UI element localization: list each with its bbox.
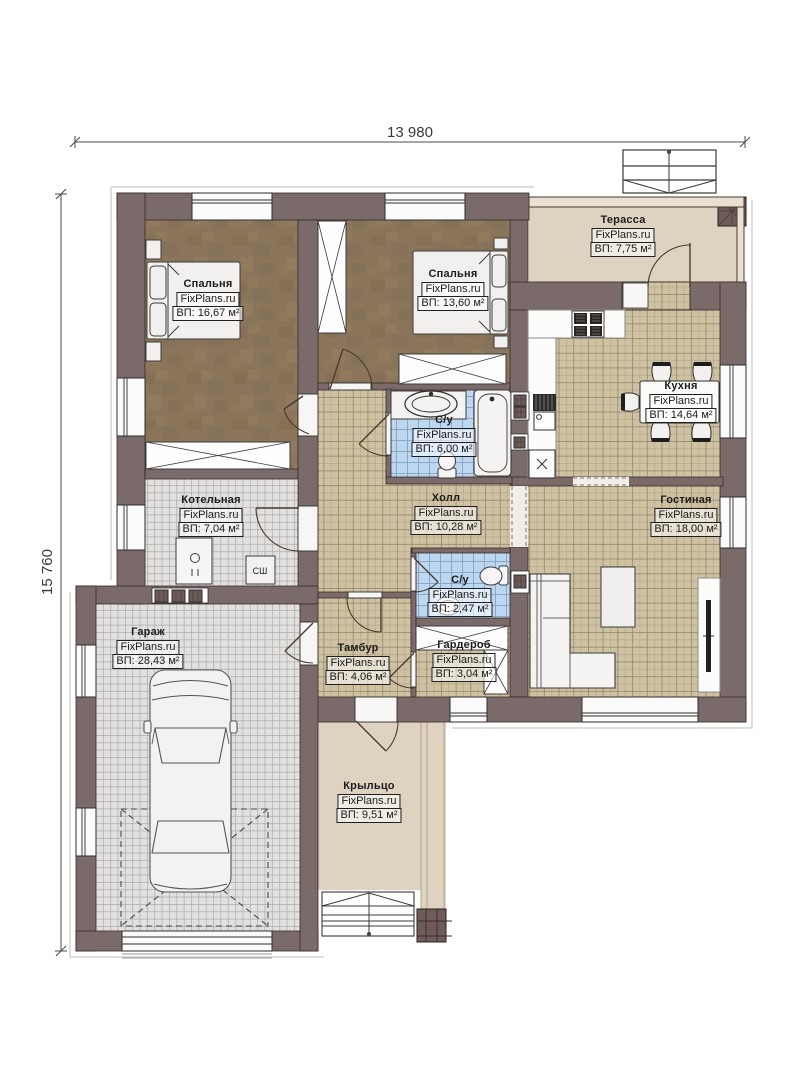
svg-text:13 980: 13 980: [387, 124, 433, 141]
svg-text:СШ: СШ: [253, 566, 268, 576]
svg-text:15 760: 15 760: [39, 549, 56, 595]
